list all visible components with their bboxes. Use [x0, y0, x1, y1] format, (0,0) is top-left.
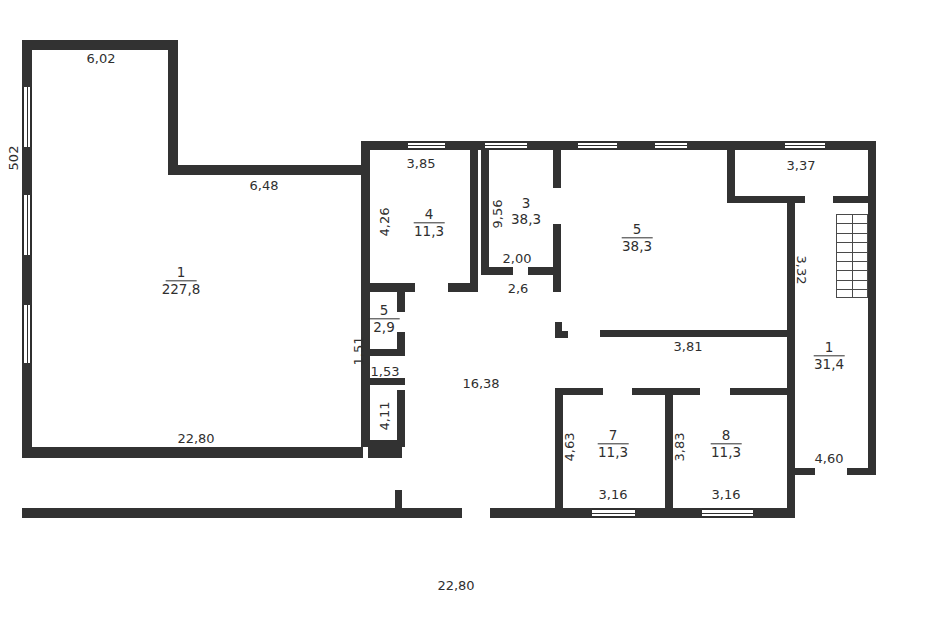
floor-plan: 1 227,8 4 11,3 3 38,3 5 38,3 5 2,9 7 11,… — [0, 0, 945, 630]
dimension-label: 3,16 — [599, 488, 628, 501]
room-number: 5 — [622, 221, 653, 238]
room-number: 7 — [598, 427, 629, 444]
dimension-label: 6,02 — [87, 52, 116, 65]
room-label-8: 8 11,3 — [711, 427, 742, 460]
wall-exterior-right — [868, 150, 876, 475]
room-number: 5 — [369, 302, 400, 319]
wall-exterior-left — [22, 363, 32, 458]
wall-room3-bottom — [481, 267, 513, 275]
dimension-label: 4,26 — [378, 208, 391, 237]
wall-exterior-left — [22, 147, 32, 195]
window — [578, 141, 617, 150]
wall-room78-top — [632, 388, 700, 395]
room-area: 2,9 — [373, 320, 394, 336]
window — [702, 508, 753, 518]
room-number: 1 — [166, 264, 197, 281]
dimension-label: 3,32 — [795, 256, 808, 285]
room-label-5-large: 5 38,3 — [622, 221, 653, 254]
dimension-label: 3,16 — [712, 488, 741, 501]
wall-bottom-right — [847, 468, 876, 475]
room-number: 4 — [414, 206, 445, 223]
dimension-label: 4,63 — [563, 433, 576, 462]
dimension-label: 3,81 — [674, 340, 703, 353]
stairs — [836, 214, 868, 298]
dimension-label: 3,85 — [407, 157, 436, 170]
dimension-label: 502 — [7, 146, 20, 171]
dimension-label: 22,80 — [437, 579, 474, 592]
room-label-1-left: 1 227,8 — [162, 264, 201, 297]
window — [655, 141, 687, 150]
wall-bottom-left-long — [22, 508, 462, 518]
wall-room78-top — [555, 388, 603, 395]
room-area: 38,3 — [622, 239, 652, 255]
room-number: 8 — [711, 427, 742, 444]
wall-recess-bottom — [727, 196, 805, 203]
window — [22, 305, 32, 363]
wall-closet-bottom — [361, 378, 405, 385]
wall-room4-bottom — [448, 283, 478, 292]
dimension-label: 1,51 — [352, 337, 365, 366]
dimension-label: 6,48 — [250, 179, 279, 192]
wall-corridor-stub — [555, 331, 568, 338]
window — [408, 141, 445, 150]
dimension-label: 16,38 — [462, 377, 499, 390]
room-label-4: 4 11,3 — [414, 206, 445, 239]
room-area: 11,3 — [414, 224, 444, 240]
wall-bottom-tick — [395, 490, 402, 508]
dimension-label: 3,83 — [673, 433, 686, 462]
window — [785, 141, 825, 150]
wall-bottom-right — [787, 468, 815, 475]
wall-shaft-right — [397, 390, 405, 447]
dimension-label: 2,6 — [508, 282, 529, 295]
room-label-5-small: 5 2,9 — [369, 302, 400, 335]
wall-hall — [600, 330, 787, 337]
wall-bigroom-bottom — [22, 447, 363, 458]
window — [485, 141, 527, 150]
wall-room3-left — [481, 150, 489, 275]
wall-room4-bottom — [361, 283, 415, 292]
wall-notch-vertical — [168, 40, 178, 175]
wall-exterior-left — [22, 50, 32, 87]
wall-smallroom-bottom — [361, 349, 405, 356]
wall-exterior-left — [22, 255, 32, 305]
wall-middle-left-vertical — [361, 150, 370, 447]
dimension-label: 9,56 — [491, 200, 504, 229]
dimension-label: 1,53 — [371, 365, 400, 378]
dimension-label: 4,60 — [815, 452, 844, 465]
window — [22, 195, 32, 255]
room-area: 31,4 — [814, 357, 844, 373]
wall-room3-right — [553, 224, 561, 292]
window — [592, 508, 635, 518]
dimension-label: 3,37 — [787, 159, 816, 172]
wall-top-left — [22, 40, 178, 50]
wall-room4-right — [470, 150, 478, 292]
room-area: 38,3 — [511, 211, 541, 227]
room-number: 1 — [814, 339, 845, 356]
room-label-3: 3 38,3 — [511, 195, 541, 227]
wall-room3-right — [553, 150, 561, 188]
room-area: 11,3 — [598, 445, 628, 461]
room-area: 11,3 — [711, 445, 741, 461]
room-number: 3 — [522, 195, 531, 211]
wall-notch-bottom — [168, 165, 370, 175]
room-label-1-right: 1 31,4 — [814, 339, 845, 372]
dimension-label: 4,11 — [378, 402, 391, 431]
dimension-label: 22,80 — [177, 432, 214, 445]
window — [22, 87, 32, 147]
room-label-7: 7 11,3 — [598, 427, 629, 460]
wall-room78-top — [730, 388, 787, 395]
room-area: 227,8 — [162, 282, 201, 298]
dimension-label: 2,00 — [503, 252, 532, 265]
